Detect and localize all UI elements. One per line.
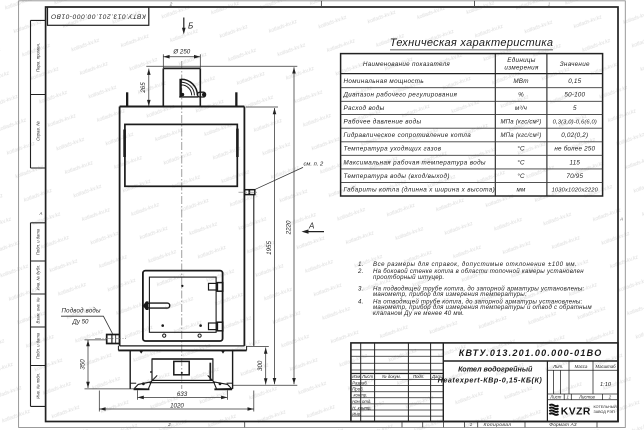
svg-text:Температура воды (вход/выход): Температура воды (вход/выход) [344,172,450,180]
svg-text:Единицы: Единицы [507,56,536,64]
svg-text:КОТЕЛЬНЫЙ: КОТЕЛЬНЫЙ [594,405,617,409]
svg-text:1020: 1020 [170,402,184,409]
svg-text:Дата: Дата [431,374,444,379]
svg-text:0,15: 0,15 [568,78,581,85]
svg-text:%: % [518,92,524,99]
svg-text:Лист: Лист [361,374,373,379]
svg-text:KVZR: KVZR [561,407,591,418]
svg-text:Габариты котла (длинна х ширин: Габариты котла (длинна х ширина х высота… [344,185,496,193]
svg-text:Взам. инв. №: Взам. инв. № [36,297,41,323]
svg-text:Heatexpert-КВр-0,15-КБ(К): Heatexpert-КВр-0,15-КБ(К) [438,375,543,384]
svg-text:3.: 3. [358,285,364,292]
svg-text:115: 115 [569,159,580,166]
svg-text:Листов: Листов [578,395,595,400]
svg-text:2: 2 [167,422,171,427]
svg-text:Справ. №: Справ. № [36,121,41,141]
svg-text:0,02(0,2): 0,02(0,2) [561,132,588,139]
svg-text:°С: °С [517,158,525,166]
svg-text:А: А [39,211,43,216]
svg-text:Расход воды: Расход воды [344,104,385,112]
svg-text:Рабочее давление воды: Рабочее давление воды [344,118,422,126]
svg-text:Подп. и дата: Подп. и дата [36,332,41,359]
svg-text:клапаном Ду не менее 40 мм.: клапаном Ду не менее 40 мм. [373,310,464,317]
svg-text:70/95: 70/95 [566,173,583,180]
svg-text:Б: Б [188,22,193,31]
svg-text:Формат А3: Формат А3 [549,422,577,427]
svg-text:Диапазон рабочего регулировани: Диапазон рабочего регулирования [343,91,458,99]
svg-text:МПа (кгс/см²): МПа (кгс/см²) [500,120,541,126]
svg-text:Перв. примен.: Перв. примен. [36,43,41,72]
svg-text:350: 350 [80,359,87,370]
svg-text:Значение: Значение [560,61,590,68]
svg-text:мм: мм [516,186,526,193]
svg-text:633: 633 [177,391,188,398]
svg-text:контр.: контр. [354,393,368,398]
svg-text:Инв. № подл.: Инв. № подл. [36,373,41,399]
svg-text:4.: 4. [358,298,364,305]
svg-text:2220: 2220 [286,220,293,235]
svg-text:Разраб.: Разраб. [352,380,368,385]
svg-text:Подп. и дата: Подп. и дата [36,228,41,255]
svg-text:КВТУ.013.201.00.000-01ВО: КВТУ.013.201.00.000-01ВО [459,348,603,358]
svg-text:Все размеры для справок, допус: Все размеры для справок, допустимые откл… [373,261,577,268]
svg-text:1:10: 1:10 [600,382,612,388]
svg-text:МВт: МВт [513,78,528,85]
svg-text:Максимальная рабочая температу: Максимальная рабочая температура воды [344,158,486,166]
svg-text:1955: 1955 [266,241,273,255]
svg-text:Лист: Лист [549,395,561,400]
svg-text:манометр, прибор для измерения: манометр, прибор для измерения температу… [373,291,527,298]
svg-text:0,3(3,0)-0,6(6,0): 0,3(3,0)-0,6(6,0) [553,120,597,126]
svg-text:Ду 50: Ду 50 [72,319,89,326]
svg-text:Подвод воды: Подвод воды [62,308,101,315]
svg-text:Ø 250: Ø 250 [172,49,190,56]
svg-text:Наименование показателя: Наименование показателя [363,61,451,68]
svg-text:265: 265 [140,82,147,94]
svg-text:Н. контр.: Н. контр. [352,405,371,410]
svg-text:Котел водогрейный: Котел водогрейный [458,365,533,374]
svg-text:Температура уходящих газов: Температура уходящих газов [344,145,442,153]
svg-text:Изм.: Изм. [352,374,361,379]
svg-text:Гидравлическое сопротивление к: Гидравлическое сопротивление котла [344,131,472,139]
svg-text:Инв.: Инв. [352,411,361,416]
svg-text:не более 250: не более 250 [554,145,595,153]
svg-text:2.: 2. [357,268,364,275]
svg-text:50-100: 50-100 [564,92,585,99]
svg-text:°С: °С [517,145,525,153]
svg-text:1: 1 [548,1,551,6]
svg-text:м³/ч: м³/ч [515,105,528,112]
svg-text:1.: 1. [358,261,364,268]
svg-text:Масса: Масса [575,364,588,369]
svg-text:КВТУ.013.201.00.000-01ВО: КВТУ.013.201.00.000-01ВО [51,12,146,19]
svg-text:А: А [308,222,314,231]
svg-text:Нач. отд.: Нач. отд. [352,399,371,404]
svg-text:см. п. 2: см. п. 2 [304,162,325,168]
svg-text:Техническая характеристика: Техническая характеристика [390,37,554,49]
svg-text:№ докум.: № докум. [382,374,401,379]
svg-text:ЗАВОД РЭП: ЗАВОД РЭП [594,410,615,414]
svg-text:Проб.: Проб. [352,386,364,391]
svg-text:Подп.: Подп. [413,374,424,379]
svg-text:проотборный штуцер.: проотборный штуцер. [373,274,444,281]
svg-text:300: 300 [257,360,264,371]
svg-text:1030х1020х2220: 1030х1020х2220 [552,187,599,193]
svg-text:2: 2 [169,1,173,6]
svg-text:Инв. № дубл.: Инв. № дубл. [36,265,41,291]
svg-text:А: А [619,217,623,222]
svg-text:измерения: измерения [504,64,539,71]
svg-text:Номинальная мощность: Номинальная мощность [344,78,425,85]
svg-text:МПа (кгс/см²): МПа (кгс/см²) [500,133,541,139]
svg-text:Копировал: Копировал [484,422,512,428]
svg-text:°С: °С [517,172,525,180]
svg-text:Масштаб: Масштаб [595,364,616,369]
svg-text:Лит.: Лит. [552,364,563,369]
svg-text:5: 5 [573,105,577,112]
